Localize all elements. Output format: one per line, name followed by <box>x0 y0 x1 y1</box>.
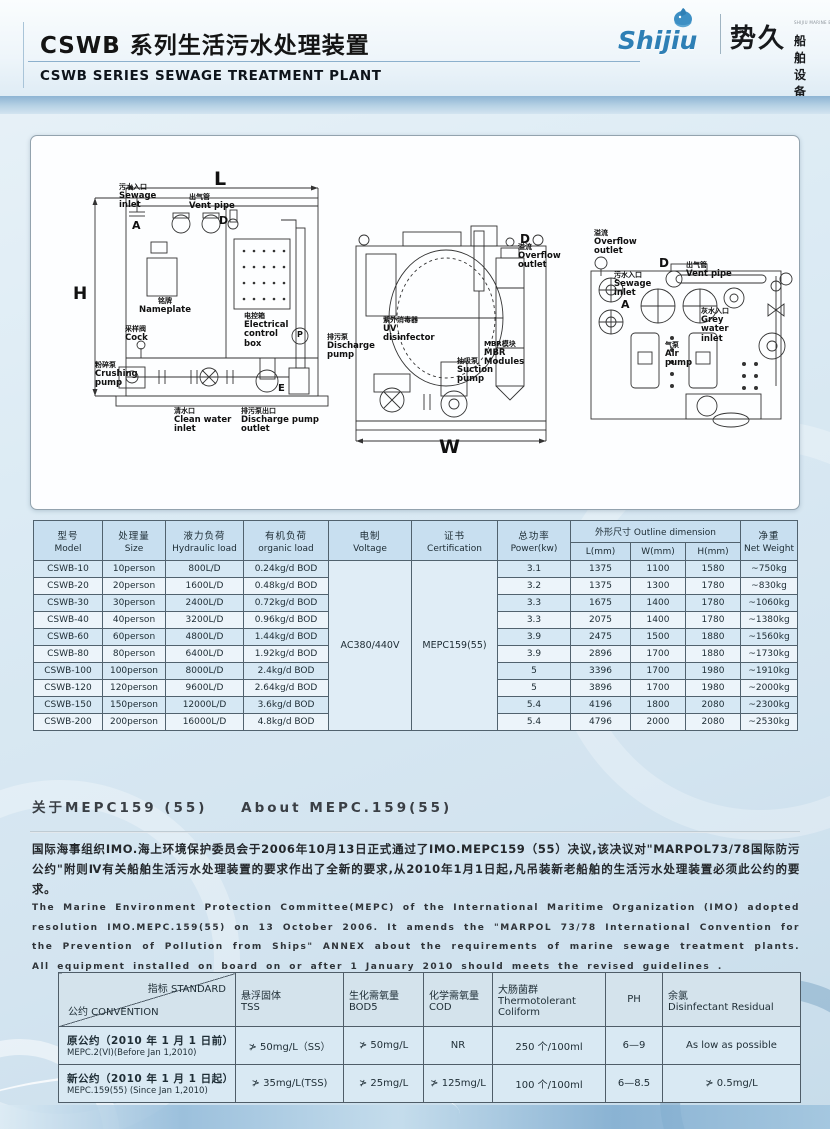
spec-cell: AC380/440V <box>329 561 412 731</box>
std-value-cell: ≯ 35mg/L(TSS) <box>236 1065 344 1103</box>
header-cn: 大肠菌群 <box>498 981 600 996</box>
spec-cell: 1980 <box>686 680 741 697</box>
corner-convention-label: 公约 CONVENTION <box>68 1003 159 1018</box>
header-en: Net Weight <box>742 544 796 554</box>
spec-cell: 3.9 <box>498 629 571 646</box>
col-header-size: 处理量 Size <box>103 521 166 561</box>
mepc-separator-line <box>30 831 800 833</box>
std-column-header: 大肠菌群Thermotolerant Coliform <box>493 973 606 1027</box>
spec-cell: 1700 <box>631 663 686 680</box>
catalog-page: CSWB 系列生活污水处理装置 CSWB SERIES SEWAGE TREAT… <box>0 0 830 1129</box>
header-cn: 处理量 <box>104 528 164 542</box>
spec-cell: 0.72kg/d BOD <box>244 595 329 612</box>
spec-cell: 5 <box>498 680 571 697</box>
spec-cell: 9600L/D <box>166 680 244 697</box>
spec-cell: 1600L/D <box>166 578 244 595</box>
spec-cell: 2080 <box>686 697 741 714</box>
spec-cell: 4796 <box>571 714 631 731</box>
header-divider <box>23 22 24 88</box>
spec-cell: 2000 <box>631 714 686 731</box>
header-en: Hydraulic load <box>167 544 242 554</box>
spec-cell: 3.1 <box>498 561 571 578</box>
std-column-header: 化学需氧量COD <box>424 973 493 1027</box>
brand-subtitle-cn: 船舶设备 <box>794 32 808 100</box>
col-header-h: H(mm) <box>686 543 741 561</box>
spec-cell: 3.9 <box>498 646 571 663</box>
header-en: Thermotolerant Coliform <box>498 996 600 1018</box>
spec-cell: 4800L/D <box>166 629 244 646</box>
col-header-voltage: 电制 Voltage <box>329 521 412 561</box>
col-header-organic-load: 有机负荷 organic load <box>244 521 329 561</box>
spec-cell: 1.92kg/d BOD <box>244 646 329 663</box>
spec-cell: 1100 <box>631 561 686 578</box>
spec-cell: MEPC159(55) <box>412 561 498 731</box>
std-row-label: 原公约（2010 年 1 月 1 日前）MEPC.2(VI)(Before Ja… <box>59 1027 236 1065</box>
header-accent-strip <box>0 96 830 114</box>
spec-cell: 1675 <box>571 595 631 612</box>
spec-table: 型号 Model 处理量 Size 液力负荷 Hydraulic load 有机… <box>33 520 798 731</box>
header-cn: 总功率 <box>499 528 569 542</box>
header-en: Model <box>35 544 101 554</box>
spec-header-row: 型号 Model 处理量 Size 液力负荷 Hydraulic load 有机… <box>34 521 798 543</box>
col-header-certification: 证书 Certification <box>412 521 498 561</box>
spec-cell: ~750kg <box>741 561 798 578</box>
brand-name-cn: 势久 <box>730 18 786 55</box>
header-cn: 余氯 <box>668 987 795 1002</box>
spec-cell: 16000L/D <box>166 714 244 731</box>
spec-cell: 2.64kg/d BOD <box>244 680 329 697</box>
std-column-header: 余氯Disinfectant Residual <box>663 973 801 1027</box>
spec-cell: 0.96kg/d BOD <box>244 612 329 629</box>
header-cn: 型号 <box>35 528 101 542</box>
title-underline <box>28 61 640 62</box>
spec-cell: 3.2 <box>498 578 571 595</box>
mepc-section-heading: 关于MEPC159 (55) About MEPC.159(55) <box>32 796 452 816</box>
spec-cell: ~1910kg <box>741 663 798 680</box>
spec-cell: 2080 <box>686 714 741 731</box>
spec-cell: 1800 <box>631 697 686 714</box>
std-value-cell: ≯ 50mg/L <box>344 1027 424 1065</box>
spec-cell: 2400L/D <box>166 595 244 612</box>
spec-cell: 1780 <box>686 595 741 612</box>
spec-cell: 200person <box>103 714 166 731</box>
header-en: Disinfectant Residual <box>668 1002 795 1013</box>
header-en: TSS <box>241 1002 338 1013</box>
spec-row: CSWB-1010person800L/D0.24kg/d BODAC380/4… <box>34 561 798 578</box>
spec-cell: 1780 <box>686 578 741 595</box>
header-en: Outline dimension <box>634 528 716 538</box>
spec-cell: CSWB-200 <box>34 714 103 731</box>
company-logo: Shijiu 势久 SHIJIU MARINE EQUIPT 船舶设备 <box>618 10 808 58</box>
spec-cell: 3.3 <box>498 595 571 612</box>
spec-cell: 1500 <box>631 629 686 646</box>
header-cn: 液力负荷 <box>167 528 242 542</box>
spec-cell: ~2300kg <box>741 697 798 714</box>
spec-cell: CSWB-120 <box>34 680 103 697</box>
spec-cell: 3396 <box>571 663 631 680</box>
spec-cell: 800L/D <box>166 561 244 578</box>
row-label-cn: 新公约（2010 年 1 月 1 日起） <box>67 1071 230 1086</box>
header-en: Size <box>104 544 164 554</box>
std-header-row: 指标 STANDARD 公约 CONVENTION 悬浮固体TSS生化需氧量BO… <box>59 973 801 1027</box>
col-header-model: 型号 Model <box>34 521 103 561</box>
mepc-heading-en: About MEPC.159(55) <box>241 800 452 816</box>
spec-cell: 1580 <box>686 561 741 578</box>
spec-cell: 1300 <box>631 578 686 595</box>
col-header-l: L(mm) <box>571 543 631 561</box>
header-en: Voltage <box>330 544 410 554</box>
col-header-power: 总功率 Power(kw) <box>498 521 571 561</box>
header-cn: 电制 <box>330 528 410 542</box>
mepc-heading-cn: 关于MEPC159 (55) <box>32 800 207 816</box>
std-column-header: 悬浮固体TSS <box>236 973 344 1027</box>
mepc-paragraph-cn: 国际海事组织IMO.海上环境保护委员会于2006年10月13日正式通过了IMO.… <box>32 840 800 899</box>
spec-cell: 20person <box>103 578 166 595</box>
header-cn: 净重 <box>742 528 796 542</box>
std-value-cell: ≯ 0.5mg/L <box>663 1065 801 1103</box>
spec-cell: 0.24kg/d BOD <box>244 561 329 578</box>
spec-cell: CSWB-60 <box>34 629 103 646</box>
spec-cell: 1880 <box>686 629 741 646</box>
spec-cell: 1400 <box>631 595 686 612</box>
brand-tagline: SHIJIU MARINE EQUIPT <box>794 20 830 25</box>
spec-cell: 0.48kg/d BOD <box>244 578 329 595</box>
spec-cell: 1375 <box>571 561 631 578</box>
std-value-cell: 100 个/100ml <box>493 1065 606 1103</box>
spec-cell: 2896 <box>571 646 631 663</box>
header-cn: 化学需氧量 <box>429 987 487 1002</box>
spec-cell: 150person <box>103 697 166 714</box>
spec-cell: 1.44kg/d BOD <box>244 629 329 646</box>
row-label-en: MEPC.2(VI)(Before Jan 1,2010) <box>67 1048 230 1058</box>
spec-cell: 1700 <box>631 646 686 663</box>
std-value-cell: 250 个/100ml <box>493 1027 606 1065</box>
spec-cell: ~830kg <box>741 578 798 595</box>
std-row-label: 新公约（2010 年 1 月 1 日起）MEPC.159(55) (Since … <box>59 1065 236 1103</box>
spec-cell: 1375 <box>571 578 631 595</box>
spec-cell: 3896 <box>571 680 631 697</box>
spec-cell: 4.8kg/d BOD <box>244 714 329 731</box>
technical-drawing-panel: L H W D D D A A E P 污水入口 Sewage inlet 出气… <box>30 135 800 510</box>
spec-cell: 6400L/D <box>166 646 244 663</box>
spec-cell: CSWB-30 <box>34 595 103 612</box>
spec-cell: 12000L/D <box>166 697 244 714</box>
spec-cell: 60person <box>103 629 166 646</box>
header-cn: 外形尺寸 <box>595 528 631 538</box>
std-row: 新公约（2010 年 1 月 1 日起）MEPC.159(55) (Since … <box>59 1065 801 1103</box>
header-en: Power(kw) <box>499 544 569 554</box>
logo-divider <box>720 14 721 54</box>
spec-cell: 120person <box>103 680 166 697</box>
corner-cell: 指标 STANDARD 公约 CONVENTION <box>59 973 236 1027</box>
spec-cell: 3.3 <box>498 612 571 629</box>
std-row: 原公约（2010 年 1 月 1 日前）MEPC.2(VI)(Before Ja… <box>59 1027 801 1065</box>
spec-cell: 5.4 <box>498 714 571 731</box>
mepc-paragraph-en: The Marine Environment Protection Commit… <box>32 899 800 977</box>
spec-cell: 100person <box>103 663 166 680</box>
header-en: organic load <box>245 544 327 554</box>
spec-cell: 2475 <box>571 629 631 646</box>
spec-cell: 80person <box>103 646 166 663</box>
spec-cell: CSWB-40 <box>34 612 103 629</box>
std-value-cell: NR <box>424 1027 493 1065</box>
spec-cell: ~2530kg <box>741 714 798 731</box>
spec-cell: CSWB-100 <box>34 663 103 680</box>
spec-cell: ~1060kg <box>741 595 798 612</box>
equipment-line-drawing <box>31 136 801 511</box>
spec-cell: 4196 <box>571 697 631 714</box>
spec-cell: 2.4kg/d BOD <box>244 663 329 680</box>
std-value-cell: 6—8.5 <box>606 1065 663 1103</box>
col-header-outline-dimension: 外形尺寸 Outline dimension <box>571 521 741 543</box>
spec-cell: ~1730kg <box>741 646 798 663</box>
dolphin-logo-icon <box>670 6 696 34</box>
std-value-cell: ≯ 50mg/L（SS） <box>236 1027 344 1065</box>
std-value-cell: ≯ 25mg/L <box>344 1065 424 1103</box>
spec-cell: CSWB-20 <box>34 578 103 595</box>
spec-cell: 3.6kg/d BOD <box>244 697 329 714</box>
spec-cell: ~1560kg <box>741 629 798 646</box>
row-label-cn: 原公约（2010 年 1 月 1 日前） <box>67 1033 230 1048</box>
header-cn: 证书 <box>413 528 496 542</box>
std-value-cell: 6—9 <box>606 1027 663 1065</box>
spec-cell: 1980 <box>686 663 741 680</box>
spec-cell: 8000L/D <box>166 663 244 680</box>
header-en: COD <box>429 1002 487 1013</box>
spec-cell: 5 <box>498 663 571 680</box>
standards-table: 指标 STANDARD 公约 CONVENTION 悬浮固体TSS生化需氧量BO… <box>58 972 801 1103</box>
spec-cell: 3200L/D <box>166 612 244 629</box>
col-header-w: W(mm) <box>631 543 686 561</box>
std-value-cell: As low as possible <box>663 1027 801 1065</box>
corner-standard-label: 指标 STANDARD <box>148 980 226 995</box>
spec-table-body: CSWB-1010person800L/D0.24kg/d BODAC380/4… <box>34 561 798 731</box>
page-header: CSWB 系列生活污水处理装置 CSWB SERIES SEWAGE TREAT… <box>0 0 830 96</box>
spec-cell: 1780 <box>686 612 741 629</box>
page-title-cn: CSWB 系列生活污水处理装置 <box>40 26 370 60</box>
spec-cell: CSWB-150 <box>34 697 103 714</box>
spec-cell: 1880 <box>686 646 741 663</box>
row-label-en: MEPC.159(55) (Since Jan 1,2010) <box>67 1086 230 1096</box>
header-cn: 有机负荷 <box>245 528 327 542</box>
std-column-header: PH <box>606 973 663 1027</box>
spec-cell: 5.4 <box>498 697 571 714</box>
std-column-header: 生化需氧量BOD5 <box>344 973 424 1027</box>
header-cn: PH <box>611 994 657 1005</box>
header-cn: 悬浮固体 <box>241 987 338 1002</box>
spec-cell: 1700 <box>631 680 686 697</box>
spec-cell: 40person <box>103 612 166 629</box>
page-title-en: CSWB SERIES SEWAGE TREATMENT PLANT <box>40 68 382 84</box>
spec-cell: ~1380kg <box>741 612 798 629</box>
spec-cell: 1400 <box>631 612 686 629</box>
header-en: BOD5 <box>349 1002 418 1013</box>
col-header-hydraulic-load: 液力负荷 Hydraulic load <box>166 521 244 561</box>
std-value-cell: ≯ 125mg/L <box>424 1065 493 1103</box>
spec-cell: CSWB-80 <box>34 646 103 663</box>
header-cn: 生化需氧量 <box>349 987 418 1002</box>
col-header-net-weight: 净重 Net Weight <box>741 521 798 561</box>
spec-cell: ~2000kg <box>741 680 798 697</box>
spec-cell: 10person <box>103 561 166 578</box>
std-table-body: 原公约（2010 年 1 月 1 日前）MEPC.2(VI)(Before Ja… <box>59 1027 801 1103</box>
spec-cell: 30person <box>103 595 166 612</box>
header-en: Certification <box>413 544 496 554</box>
spec-cell: 2075 <box>571 612 631 629</box>
spec-cell: CSWB-10 <box>34 561 103 578</box>
footer-wave-band <box>0 1105 830 1129</box>
